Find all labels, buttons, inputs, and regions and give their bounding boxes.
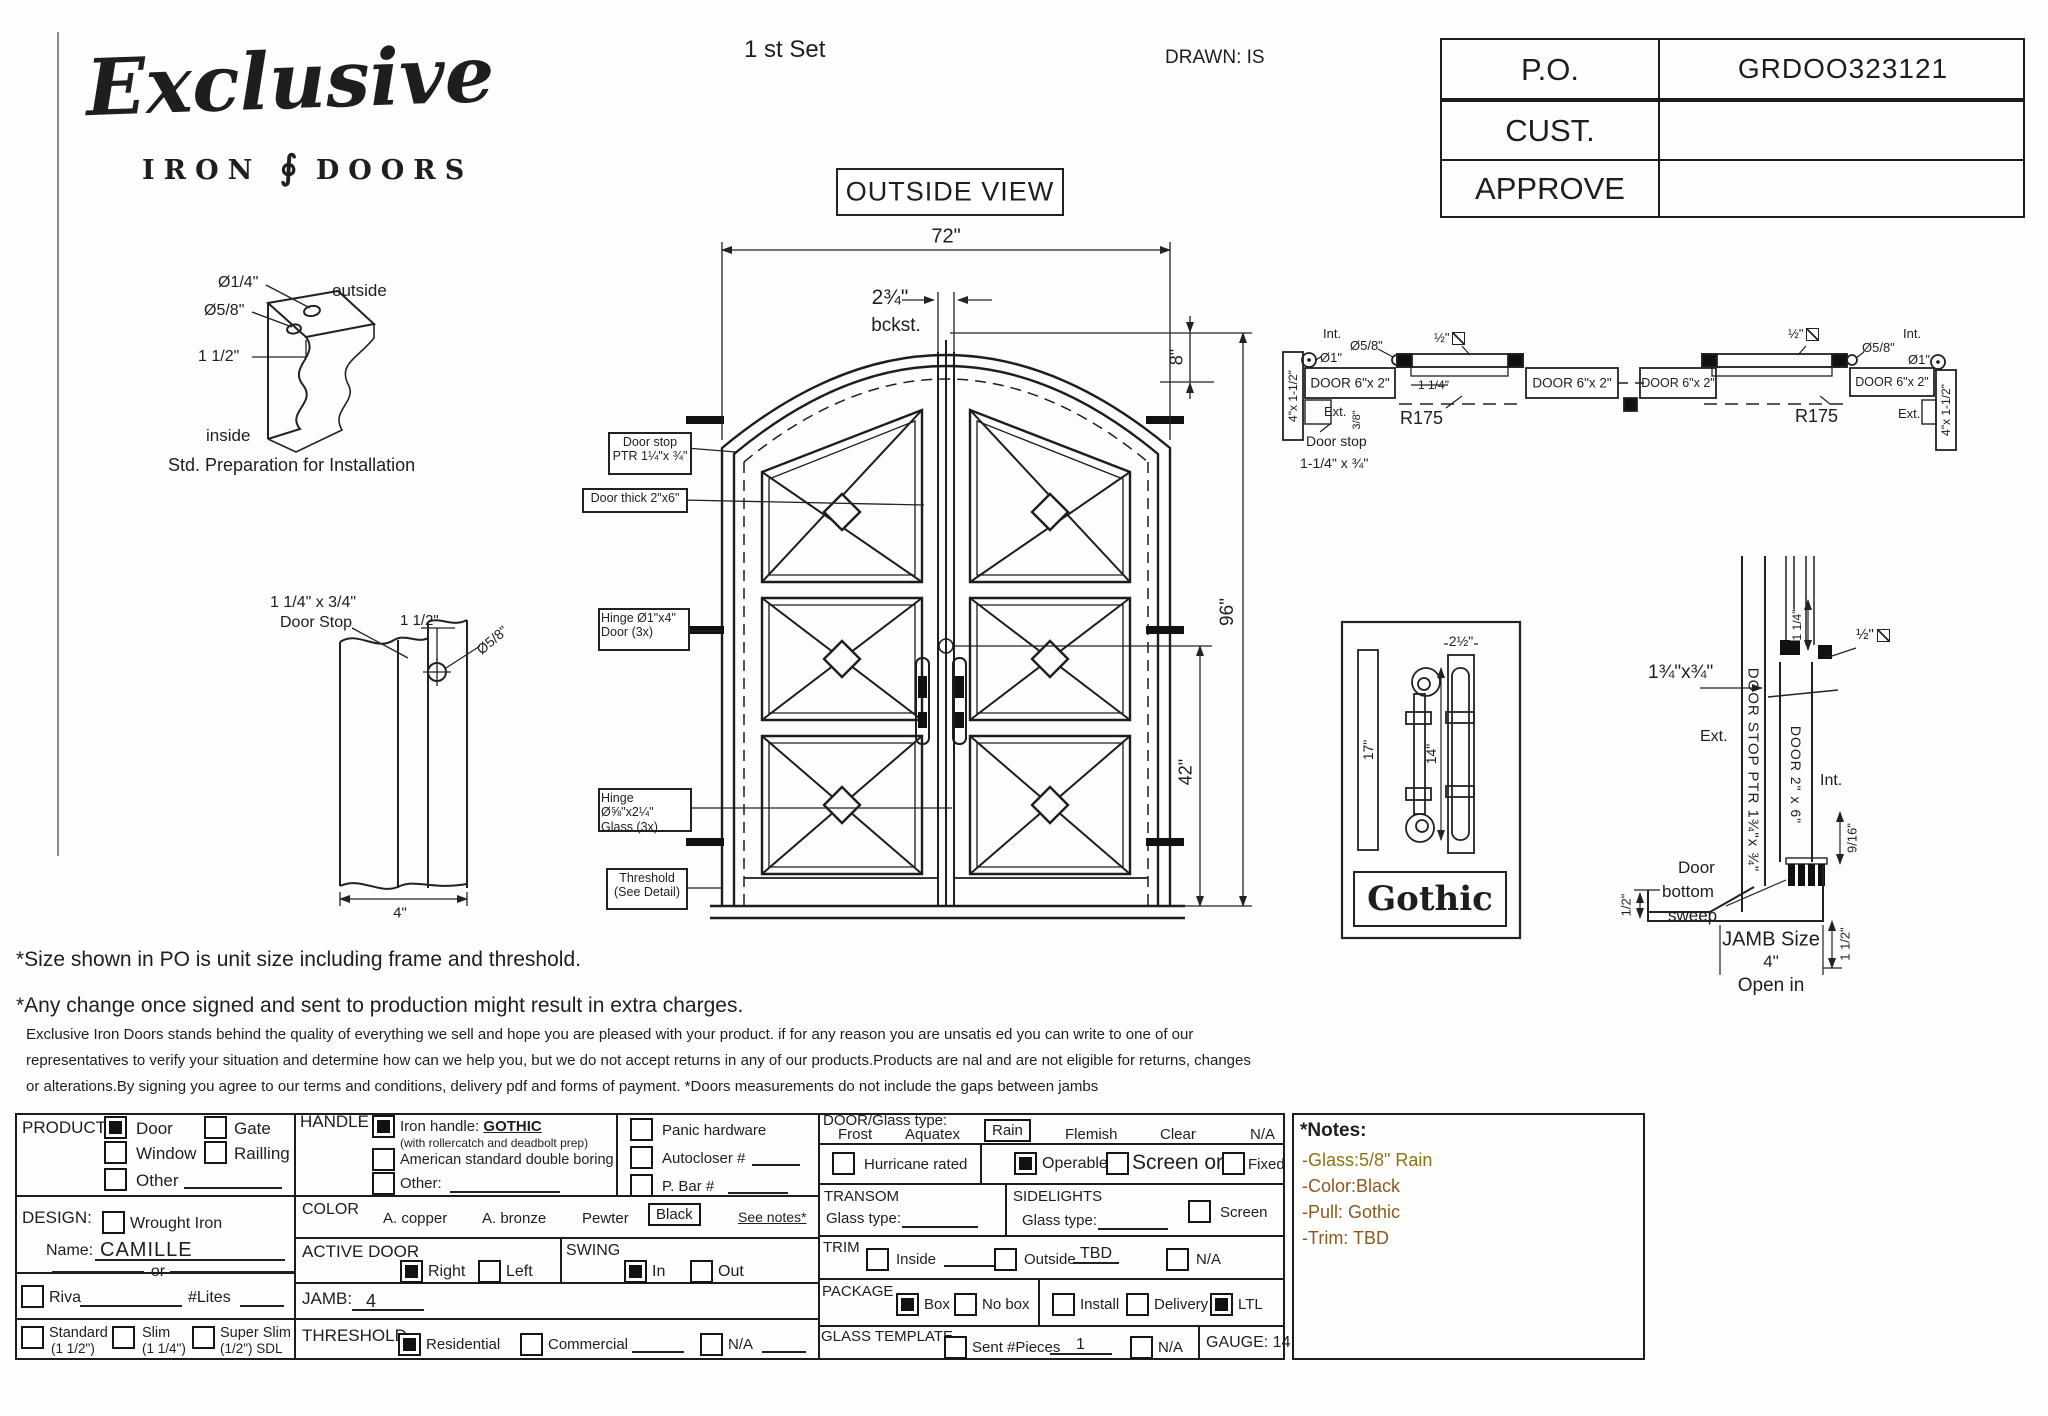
fixed-label: Fixed	[1248, 1156, 1285, 1173]
standard-sub: (1 1/2")	[51, 1341, 95, 1356]
package-ltl-label: LTL	[1238, 1296, 1263, 1313]
notes-title: *Notes:	[1300, 1120, 1367, 1142]
po-label: P.O.	[1521, 52, 1579, 88]
hsec-door-3: DOOR 6"x 2"	[1641, 376, 1714, 390]
gauge-label: GAUGE: 14	[1206, 1334, 1290, 1352]
square-symbol	[1806, 328, 1819, 341]
disclaimer-para-3: or alterations.By signing you agree to o…	[26, 1078, 1098, 1095]
logo-exclusive: Exclusive	[85, 29, 496, 134]
package-nobox-label: No box	[982, 1296, 1030, 1313]
stop-width: 4"	[393, 905, 407, 922]
riva-label: Riva	[49, 1289, 81, 1307]
product-door-checkbox[interactable]	[104, 1116, 127, 1139]
riva-checkbox[interactable]	[21, 1285, 44, 1308]
or-dash-left	[52, 1263, 144, 1273]
jsec-oh: 1 1/2"	[1838, 927, 1853, 961]
dim-width: 72"	[926, 226, 965, 249]
slim-label: Slim	[142, 1325, 170, 1341]
jsec-half-text: ½"	[1856, 626, 1874, 643]
glass-template-label: GLASS TEMPLATE	[821, 1328, 953, 1345]
hsec-half-left-text: ½"	[1434, 330, 1449, 345]
product-other-checkbox[interactable]	[104, 1168, 127, 1191]
stop-label: Door Stop	[280, 614, 352, 632]
callout-threshold-line1: Threshold	[609, 871, 685, 885]
trim-inside-checkbox[interactable]	[866, 1248, 889, 1271]
hurricane-label: Hurricane rated	[864, 1156, 967, 1173]
notes-line-color: -Color:Black	[1302, 1176, 1400, 1197]
gt-sent-label: Sent #Pieces	[972, 1339, 1060, 1356]
package-install-label: Install	[1080, 1296, 1119, 1313]
swing-out-label: Out	[718, 1263, 744, 1281]
swing-label: SWING	[566, 1242, 620, 1260]
handle-iron-text: Iron handle:	[400, 1118, 479, 1135]
hsec-doorstop-2: 1-1/4" x ¾"	[1300, 455, 1368, 471]
trim-na-checkbox[interactable]	[1166, 1248, 1189, 1271]
gothic-dim-17: 17"	[1360, 740, 1376, 761]
design-label: DESIGN:	[22, 1208, 92, 1228]
autocloser-checkbox[interactable]	[630, 1146, 653, 1169]
hsec-jamb-left: 4"x 1-1/2"	[1286, 370, 1300, 422]
handle-american-checkbox[interactable]	[372, 1148, 395, 1171]
jsec-open-in: Open in	[1738, 975, 1805, 997]
threshold-na-field[interactable]	[762, 1338, 806, 1353]
swing-out-checkbox[interactable]	[690, 1260, 713, 1283]
sidelights-glass-label: Glass type:	[1022, 1212, 1097, 1229]
color-see-notes: See notes*	[738, 1209, 807, 1225]
swing-in-label: In	[652, 1263, 665, 1281]
hurricane-checkbox[interactable]	[832, 1152, 855, 1175]
callout-hinge-door-line1: Hinge Ø1"x4"	[601, 611, 687, 625]
sidelights-screen-checkbox[interactable]	[1188, 1200, 1211, 1223]
color-copper[interactable]: A. copper	[383, 1210, 447, 1227]
dim-handle-height: 42"	[1176, 759, 1197, 785]
package-box-checkbox[interactable]	[896, 1293, 919, 1316]
handle-iron-checkbox[interactable]	[372, 1115, 395, 1138]
standard-label: Standard	[49, 1325, 108, 1341]
jsec-916: 9/16"	[1845, 823, 1860, 853]
hsec-half-right: ½"	[1788, 326, 1819, 341]
dim-backset: 2¾"	[872, 286, 909, 310]
jsec-ext: Ext.	[1700, 728, 1728, 746]
pbar-label: P. Bar #	[662, 1178, 714, 1195]
design-name-label: Name:	[46, 1242, 93, 1260]
lites-field[interactable]	[240, 1290, 284, 1307]
corner-dia2: Ø5/8"	[204, 302, 244, 320]
product-label: PRODUCT:	[22, 1118, 109, 1138]
notes-line-glass: -Glass:5/8" Rain	[1302, 1150, 1432, 1171]
handle-iron-label: Iron handle: GOTHIC	[400, 1118, 542, 1135]
gt-na-checkbox[interactable]	[1130, 1336, 1153, 1359]
jsec-sweep-3: sweep	[1668, 906, 1717, 926]
screen-or-label: Screen or	[1132, 1151, 1223, 1175]
package-delivery-label: Delivery	[1154, 1296, 1208, 1313]
transom-glass-label: Glass type:	[826, 1210, 901, 1227]
hsec-door-2: DOOR 6"x 2"	[1532, 376, 1611, 391]
trim-outside-checkbox[interactable]	[994, 1248, 1017, 1271]
design-wrought-checkbox[interactable]	[102, 1211, 125, 1234]
drawn-label: DRAWN: IS	[1165, 47, 1265, 69]
hsec-dia1-left: Ø1"	[1320, 350, 1342, 365]
superslim-sub: (1/2") SDL	[220, 1341, 283, 1356]
po-value[interactable]: GRDOO323121	[1738, 53, 1948, 85]
package-ltl-checkbox[interactable]	[1210, 1293, 1233, 1316]
operable-label: Operable	[1042, 1155, 1108, 1173]
gothic-caption: Gothic	[1367, 879, 1493, 919]
panic-checkbox[interactable]	[630, 1118, 653, 1141]
product-railling-checkbox[interactable]	[204, 1141, 227, 1164]
outside-view-label: OUTSIDE VIEW	[836, 168, 1064, 216]
callout-threshold-line2: (See Detail)	[609, 885, 685, 899]
superslim-checkbox[interactable]	[192, 1326, 215, 1349]
threshold-label: THRESHOLD	[302, 1326, 407, 1346]
callout-door-thick-text: Door thick 2"x6"	[585, 491, 685, 505]
callout-hinge-glass: Hinge Ø⅝"x2¼" Glass (3x)	[598, 788, 692, 832]
active-left-checkbox[interactable]	[478, 1260, 501, 1283]
threshold-residential-checkbox[interactable]	[398, 1333, 421, 1356]
cust-label: CUST.	[1505, 113, 1595, 149]
gt-na-label: N/A	[1158, 1339, 1183, 1356]
autocloser-field[interactable]	[752, 1150, 800, 1166]
jsec-door-vertical: DOOR 2" x 6"	[1788, 726, 1804, 824]
corner-inside: inside	[206, 426, 250, 446]
slim-sub: (1 1/4")	[142, 1341, 186, 1356]
hsec-dia58-left: Ø5/8"	[1350, 338, 1383, 353]
screen-checkbox[interactable]	[1106, 1152, 1129, 1175]
active-door-label: ACTIVE DOOR	[302, 1242, 419, 1262]
jsec-jamb-size: JAMB Size	[1722, 929, 1820, 952]
operable-checkbox[interactable]	[1014, 1152, 1037, 1175]
hsec-doorstop-1: Door stop	[1306, 433, 1367, 449]
slim-checkbox[interactable]	[112, 1326, 135, 1349]
notes-line-pull: -Pull: Gothic	[1302, 1202, 1400, 1223]
logo-ornament-icon: ∮	[280, 148, 298, 188]
outside-view-text: OUTSIDE VIEW	[846, 176, 1055, 207]
riva-field[interactable]	[80, 1290, 182, 1307]
handle-label: HANDLE	[300, 1112, 369, 1132]
handle-american-label: American standard double boring	[400, 1152, 614, 1168]
or-dash-right	[170, 1263, 296, 1273]
hsec-half-right-text: ½"	[1788, 326, 1803, 341]
jsec-sweep-2: bottom	[1662, 882, 1714, 902]
trim-na-label: N/A	[1196, 1251, 1221, 1268]
corner-dim: 1 1/2"	[198, 348, 239, 366]
hsec-door-1: DOOR 6"x 2"	[1310, 376, 1389, 391]
hsec-q114: 1 1/4"	[1418, 378, 1449, 392]
disclaimer-line2: *Any change once signed and sent to prod…	[16, 994, 743, 1018]
product-gate-label: Gate	[234, 1119, 271, 1139]
logo-doors: DOORS	[316, 155, 473, 186]
threshold-residential-label: Residential	[426, 1336, 500, 1353]
standard-checkbox[interactable]	[21, 1326, 44, 1349]
trim-label: TRIM	[823, 1239, 860, 1256]
jsec-doorstop-vertical: DOOR STOP PTR 1¾"x ¾"	[1745, 668, 1762, 872]
dim-arch: 8"	[1167, 349, 1188, 365]
color-black-option[interactable]: Black	[648, 1203, 701, 1226]
color-black[interactable]: Black	[648, 1206, 701, 1223]
sidelights-label: SIDELIGHTS	[1013, 1188, 1102, 1205]
active-right-checkbox[interactable]	[400, 1260, 423, 1283]
dim-height: 96"	[1217, 598, 1239, 626]
set-label: 1 st Set	[744, 36, 825, 64]
handle-iron-sub: (with rollercatch and deadbolt prep)	[400, 1136, 588, 1150]
doorglass-na[interactable]: N/A	[1250, 1126, 1275, 1143]
doorglass-rain-option[interactable]: Rain	[984, 1119, 1031, 1142]
approve-label: APPROVE	[1475, 171, 1625, 207]
autocloser-label: Autocloser #	[662, 1150, 745, 1167]
threshold-commercial-checkbox[interactable]	[520, 1333, 543, 1356]
hsec-r175-left: R175	[1400, 408, 1443, 429]
jsec-jamb-value: 4"	[1763, 952, 1779, 972]
hsec-jamb-right: 4"x 1-1/2"	[1939, 384, 1953, 436]
notes-line-trim: -Trim: TBD	[1302, 1228, 1389, 1249]
lites-label: #Lites	[188, 1289, 231, 1307]
callout-hinge-door: Hinge Ø1"x4" Door (3x)	[598, 608, 690, 651]
fixed-checkbox[interactable]	[1222, 1152, 1245, 1175]
superslim-label: Super Slim	[220, 1325, 291, 1341]
design-wrought-label: Wrought Iron	[130, 1215, 222, 1233]
callout-door-stop: Door stop PTR 1¼"x ¾"	[608, 432, 692, 475]
active-left-label: Left	[506, 1263, 533, 1281]
corner-caption: Std. Preparation for Installation	[168, 455, 415, 476]
callout-door-stop-line1: Door stop	[611, 435, 689, 449]
jsec-int: Int.	[1820, 772, 1842, 790]
hsec-dia1-right: Ø1"	[1908, 352, 1930, 367]
hsec-int-left: Int.	[1323, 326, 1341, 341]
color-pewter[interactable]: Pewter	[582, 1210, 629, 1227]
package-label: PACKAGE	[822, 1283, 893, 1300]
design-name-field[interactable]	[95, 1242, 285, 1261]
gt-sent-checkbox[interactable]	[944, 1336, 967, 1359]
disclaimer-line1: *Size shown in PO is unit size including…	[16, 948, 581, 972]
gt-pieces-field[interactable]	[1050, 1339, 1112, 1355]
stop-dim1: 1 1/2"	[400, 612, 439, 629]
callout-hinge-glass-line2: Glass (3x)	[601, 820, 689, 834]
disclaimer-para-2: representatives to verify your situation…	[26, 1052, 1251, 1069]
jsec-half: ½"	[1856, 626, 1890, 643]
color-bronze[interactable]: A. bronze	[482, 1210, 546, 1227]
handle-other-label: Other:	[400, 1175, 442, 1192]
hsec-r175-right: R175	[1795, 406, 1838, 427]
pbar-checkbox[interactable]	[630, 1174, 653, 1197]
callout-door-stop-line2: PTR 1¼"x ¾"	[611, 449, 689, 463]
hsec-ext-left: Ext.	[1324, 404, 1346, 419]
square-symbol	[1877, 629, 1890, 642]
jsec-half2: 1/2"	[1619, 894, 1634, 917]
product-gate-checkbox[interactable]	[204, 1116, 227, 1139]
doorglass-frost[interactable]: Frost	[838, 1126, 872, 1143]
product-other-label: Other	[136, 1171, 179, 1191]
product-railling-label: Railling	[234, 1144, 290, 1164]
transom-glass-field[interactable]	[902, 1212, 978, 1228]
handle-other-checkbox[interactable]	[372, 1172, 395, 1195]
package-nobox-checkbox[interactable]	[954, 1293, 977, 1316]
order-sheet: Exclusive IRON ∮ DOORS 1 st Set DRAWN: I…	[0, 0, 2048, 1416]
jsec-sweep-1: Door	[1678, 858, 1715, 878]
stop-size: 1 1/4" x 3/4"	[270, 594, 356, 612]
color-label: COLOR	[302, 1201, 359, 1219]
corner-outside: outside	[332, 281, 387, 301]
sidelights-glass-field[interactable]	[1098, 1214, 1168, 1230]
panic-label: Panic hardware	[662, 1122, 766, 1139]
handle-other-field[interactable]	[450, 1176, 560, 1193]
product-door-label: Door	[136, 1119, 173, 1139]
swing-in-checkbox[interactable]	[624, 1260, 647, 1283]
hsec-ext-right: Ext.	[1898, 406, 1920, 421]
jamb-label: JAMB:	[302, 1289, 352, 1309]
threshold-na-checkbox[interactable]	[700, 1333, 723, 1356]
jamb-field[interactable]	[352, 1293, 424, 1311]
package-delivery-checkbox[interactable]	[1126, 1293, 1149, 1316]
gothic-dim-14: 14"	[1423, 744, 1439, 765]
doorglass-aquatex[interactable]: Aquatex	[905, 1126, 960, 1143]
package-box-label: Box	[924, 1296, 950, 1313]
doorglass-clear[interactable]: Clear	[1160, 1126, 1196, 1143]
square-symbol	[1452, 332, 1465, 345]
hsec-door-4: DOOR 6"x 2"	[1855, 375, 1928, 389]
transom-label: TRANSOM	[824, 1188, 899, 1205]
threshold-na-label: N/A	[728, 1336, 753, 1353]
trim-inside-field[interactable]	[944, 1252, 994, 1267]
doorglass-rain[interactable]: Rain	[984, 1122, 1031, 1139]
threshold-commercial-field[interactable]	[632, 1338, 684, 1353]
hsec-int-right: Int.	[1903, 326, 1921, 341]
threshold-commercial-label: Commercial	[548, 1336, 628, 1353]
jsec-q114: 1 1/4"	[1790, 610, 1804, 641]
gothic-dim-25: 2½"	[1449, 633, 1473, 649]
callout-threshold: Threshold (See Detail)	[606, 868, 688, 910]
hsec-e38: 3/8"	[1351, 410, 1363, 429]
handle-iron-value[interactable]: GOTHIC	[483, 1118, 541, 1135]
dim-backset-sub: bckst.	[871, 315, 921, 337]
product-window-label: Window	[136, 1144, 196, 1164]
hsec-dia58-right: Ø5/8"	[1862, 340, 1895, 355]
jsec-size: 1¾"x¾"	[1648, 662, 1713, 684]
trim-inside-label: Inside	[896, 1251, 936, 1268]
callout-hinge-glass-line1: Hinge Ø⅝"x2¼"	[601, 791, 689, 820]
design-or: or	[151, 1263, 165, 1281]
sidelights-screen-label: Screen	[1220, 1204, 1268, 1221]
callout-hinge-door-line2: Door (3x)	[601, 625, 687, 639]
product-window-checkbox[interactable]	[104, 1141, 127, 1164]
trim-outside-field[interactable]	[1073, 1248, 1119, 1264]
package-install-checkbox[interactable]	[1052, 1293, 1075, 1316]
callout-door-thick: Door thick 2"x6"	[582, 488, 688, 513]
product-other-field[interactable]	[184, 1172, 282, 1189]
active-right-label: Right	[428, 1263, 465, 1281]
trim-outside-label: Outside	[1024, 1251, 1076, 1268]
doorglass-flemish[interactable]: Flemish	[1065, 1126, 1118, 1143]
pbar-field[interactable]	[728, 1178, 788, 1194]
corner-dia1: Ø1/4"	[218, 274, 258, 292]
disclaimer-para-1: Exclusive Iron Doors stands behind the q…	[26, 1026, 1193, 1043]
logo-subtitle: IRON ∮ DOORS	[142, 148, 473, 188]
hsec-half-left: ½"	[1434, 330, 1465, 345]
logo-iron: IRON	[142, 155, 261, 186]
